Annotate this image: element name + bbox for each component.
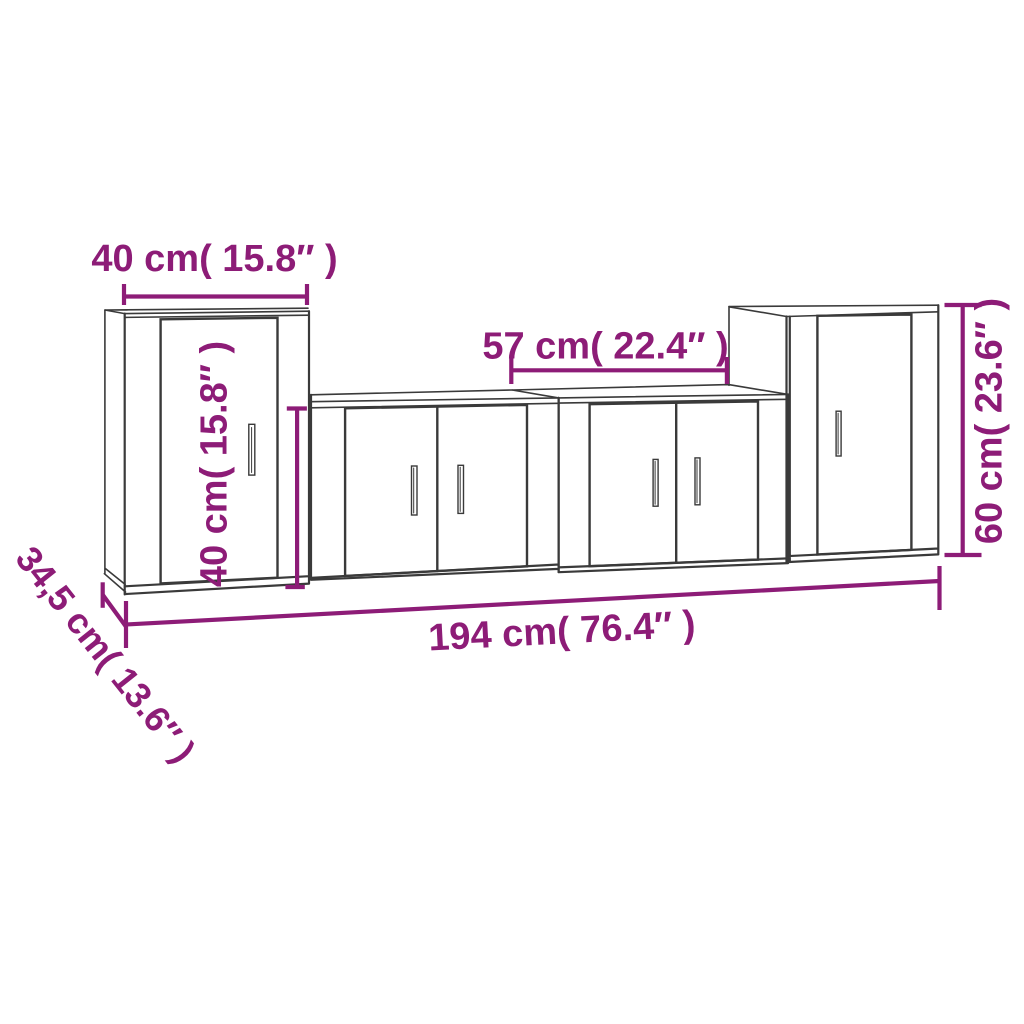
svg-text:40 cm( 15.8″ ): 40 cm( 15.8″ ) [91, 238, 337, 280]
svg-text:57 cm( 22.4″ ): 57 cm( 22.4″ ) [482, 326, 728, 368]
svg-text:60 cm( 23.6″ ): 60 cm( 23.6″ ) [969, 298, 1011, 544]
svg-text:40 cm( 15.8″ ): 40 cm( 15.8″ ) [194, 341, 236, 587]
